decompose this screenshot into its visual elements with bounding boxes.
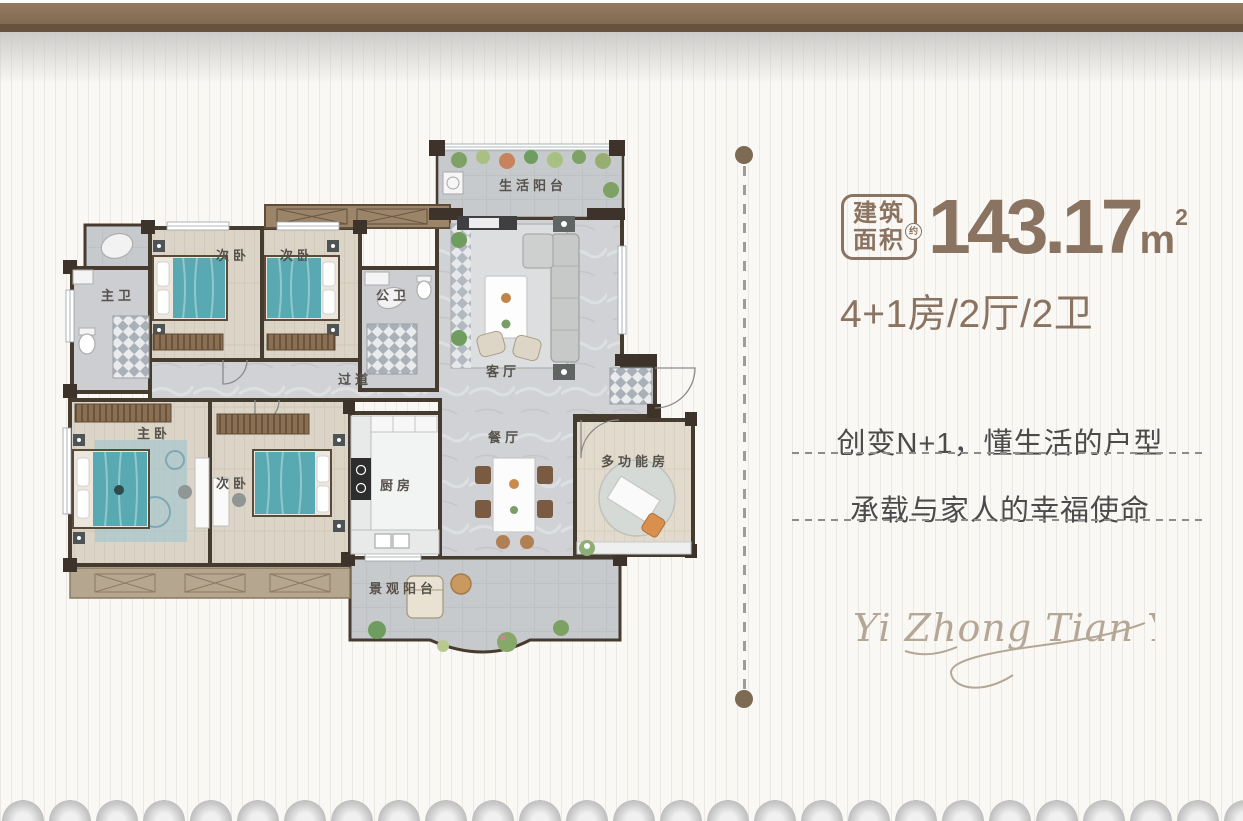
room-label-bedroom-3: 次卧 bbox=[280, 248, 314, 263]
divider-dot-top bbox=[735, 146, 753, 164]
room-label-view-balcony: 景观阳台 bbox=[369, 581, 437, 596]
area-unit-exponent: 2 bbox=[1175, 204, 1188, 230]
slogan-line-1: 创变N+1，懂生活的户型 bbox=[780, 420, 1220, 462]
floorplan-drawing: 生活阳台 客厅 次卧 次卧 主卫 公卫 过道 主卧 次卧 厨房 餐厅 多功能房 … bbox=[55, 128, 710, 668]
room-label-multi-function-room: 多功能房 bbox=[601, 454, 669, 469]
slogan-dash-2 bbox=[792, 519, 1208, 521]
floors bbox=[70, 148, 693, 652]
top-brown-band bbox=[0, 3, 1243, 24]
room-label-dining-room: 餐厅 bbox=[487, 430, 522, 445]
room-label-kitchen: 厨房 bbox=[380, 478, 414, 493]
floorplan-poster: 生活阳台 客厅 次卧 次卧 主卫 公卫 过道 主卧 次卧 厨房 餐厅 多功能房 … bbox=[0, 0, 1243, 821]
bottom-scallop-border bbox=[0, 790, 1243, 821]
brand-signature-text: Yi Zhong Tian Yue bbox=[853, 606, 1155, 650]
area-number: 143.17m2 bbox=[928, 183, 1188, 272]
room-label-bedroom-2: 次卧 bbox=[216, 248, 250, 263]
room-label-bedroom-4: 次卧 bbox=[216, 476, 250, 491]
room-label-master-bedroom: 主卧 bbox=[137, 426, 171, 441]
room-label-life-balcony: 生活阳台 bbox=[499, 178, 567, 193]
area-badge-line2: 面积 bbox=[853, 227, 905, 254]
slogan-dash-1 bbox=[792, 452, 1208, 454]
brand-signature: Yi Zhong Tian Yue bbox=[845, 583, 1155, 693]
area-badge-line1: 建筑 bbox=[853, 200, 905, 227]
room-label-living-room: 客厅 bbox=[486, 364, 520, 379]
slogan-line-2: 承载与家人的幸福使命 bbox=[780, 487, 1220, 529]
approx-circle-badge: 约 bbox=[905, 223, 922, 240]
room-label-public-bath: 公卫 bbox=[376, 288, 410, 303]
layout-spec: 4+1房/2厅/2卫 bbox=[840, 283, 1170, 339]
divider-dot-bottom bbox=[735, 690, 753, 708]
vertical-dashed-divider bbox=[743, 166, 746, 690]
area-value: 143.17 bbox=[928, 184, 1140, 270]
room-label-master-bath: 主卫 bbox=[101, 288, 135, 303]
living-room-furniture bbox=[451, 216, 579, 380]
top-dark-band bbox=[0, 24, 1243, 32]
top-gradient-fade bbox=[0, 32, 1243, 84]
area-unit: m bbox=[1140, 218, 1176, 262]
room-label-hallway: 过道 bbox=[338, 372, 372, 387]
